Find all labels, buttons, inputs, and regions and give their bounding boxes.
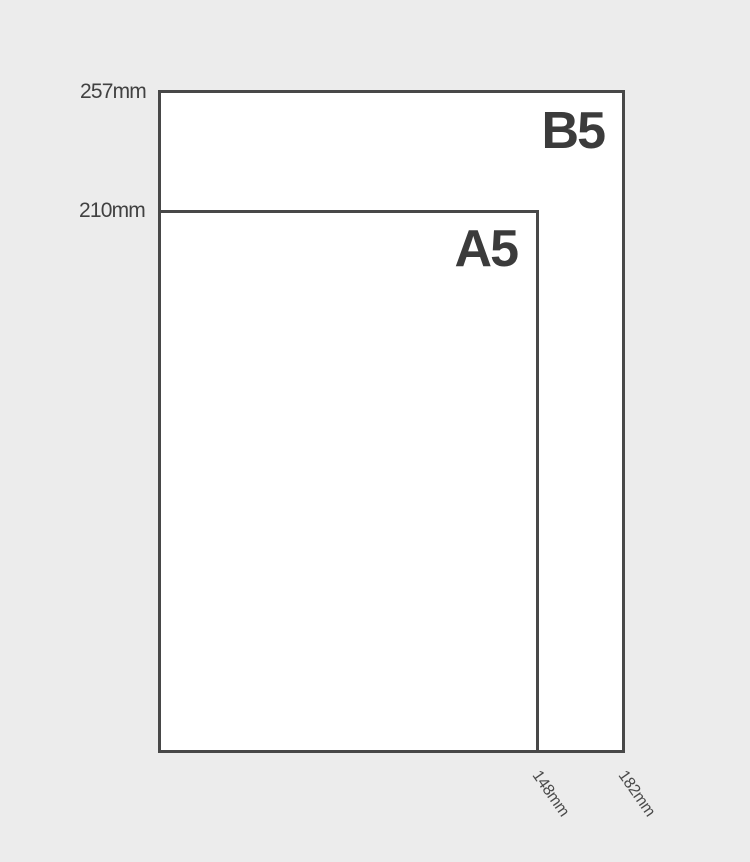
a5-sheet-label: A5 bbox=[455, 223, 517, 275]
paper-size-comparison-diagram: B5 A5 257mm 210mm 148mm 182mm bbox=[0, 0, 750, 862]
a5-sheet: A5 bbox=[158, 210, 539, 753]
b5-width-dimension-label: 182mm bbox=[615, 768, 658, 820]
a5-height-dimension-label: 210mm bbox=[25, 200, 145, 222]
b5-height-dimension-label: 257mm bbox=[26, 81, 146, 103]
a5-width-dimension-label: 148mm bbox=[529, 768, 572, 820]
b5-sheet-label: B5 bbox=[542, 105, 604, 157]
